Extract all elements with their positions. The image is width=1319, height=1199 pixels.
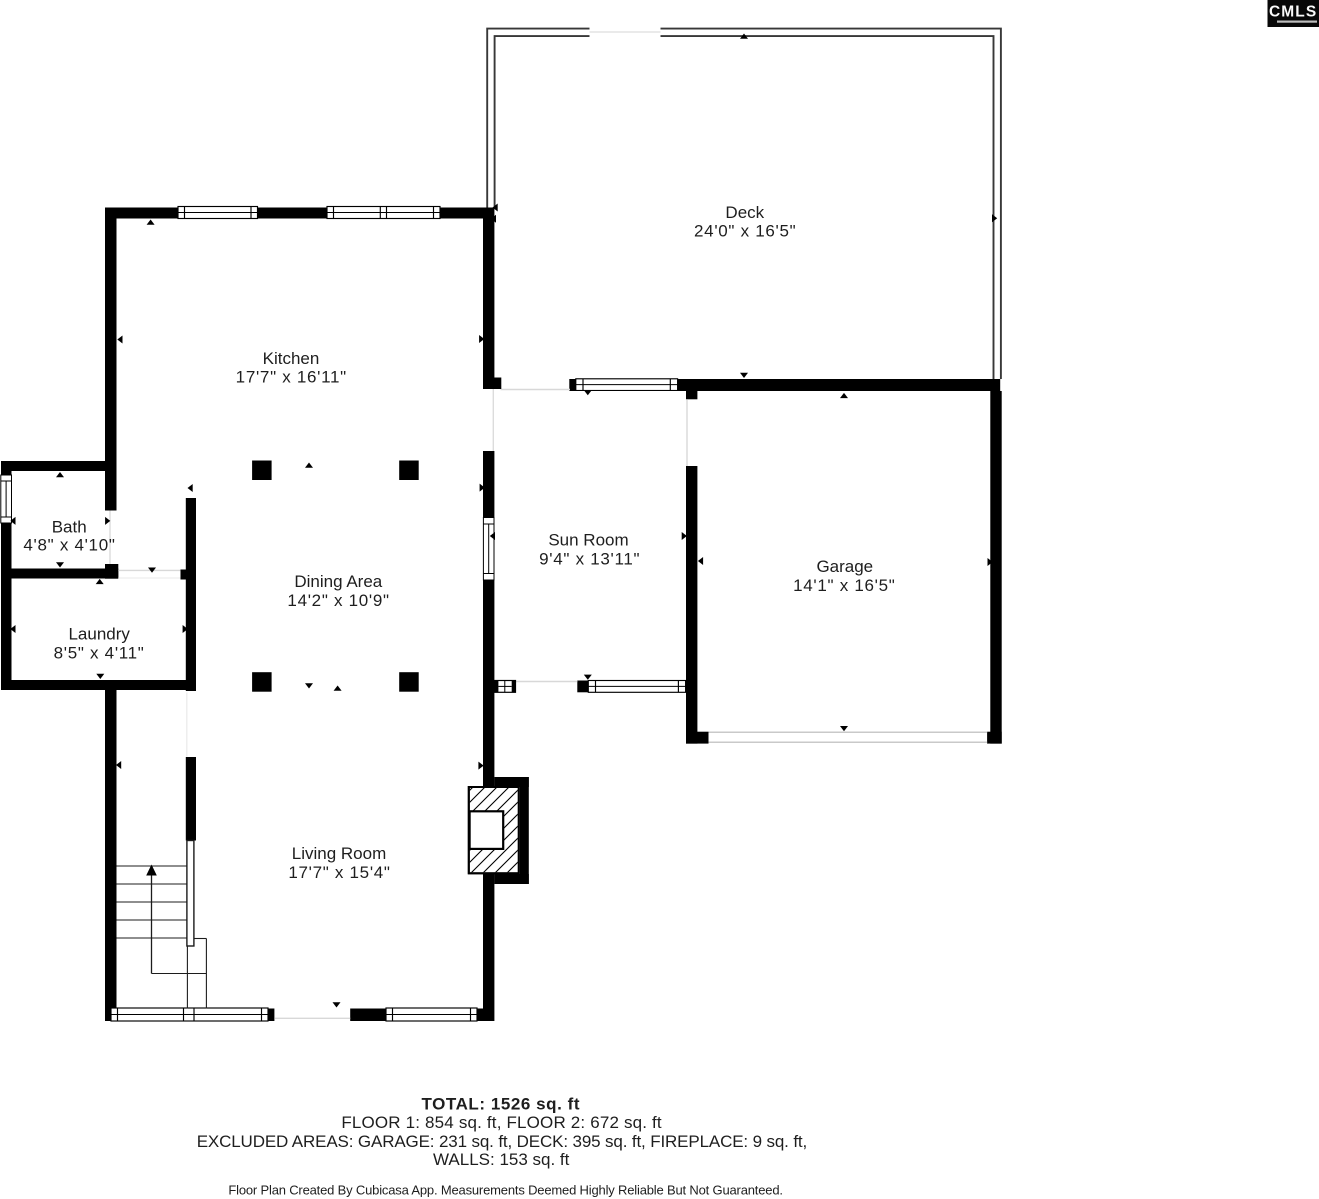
svg-text:9'4" x 13'11": 9'4" x 13'11" <box>539 550 640 569</box>
svg-text:EXCLUDED AREAS: GARAGE: 231 sq: EXCLUDED AREAS: GARAGE: 231 sq. ft, DECK… <box>197 1132 807 1151</box>
svg-text:17'7" x 15'4": 17'7" x 15'4" <box>288 863 390 882</box>
svg-text:24'0" x 16'5": 24'0" x 16'5" <box>694 221 796 240</box>
svg-text:14'2" x 10'9": 14'2" x 10'9" <box>287 591 389 610</box>
svg-text:Living Room: Living Room <box>292 844 387 863</box>
svg-text:Floor Plan Created By Cubicasa: Floor Plan Created By Cubicasa App. Meas… <box>228 1182 782 1197</box>
svg-text:Dining Area: Dining Area <box>294 572 382 591</box>
svg-text:4'8" x 4'10": 4'8" x 4'10" <box>23 536 115 555</box>
svg-text:14'1" x 16'5": 14'1" x 16'5" <box>793 576 895 595</box>
svg-text:TOTAL: 1526 sq. ft: TOTAL: 1526 sq. ft <box>422 1095 581 1114</box>
svg-text:Laundry: Laundry <box>68 625 130 644</box>
svg-text:Deck: Deck <box>725 203 764 222</box>
svg-text:CMLS: CMLS <box>1269 4 1317 21</box>
svg-text:17'7" x 16'11": 17'7" x 16'11" <box>236 367 347 386</box>
svg-text:Sun Room: Sun Room <box>548 531 628 550</box>
svg-text:WALLS: 153 sq. ft: WALLS: 153 sq. ft <box>433 1150 570 1169</box>
svg-text:8'5" x 4'11": 8'5" x 4'11" <box>54 644 145 663</box>
svg-text:Garage: Garage <box>816 557 873 576</box>
svg-text:Bath: Bath <box>52 517 87 536</box>
svg-text:Kitchen: Kitchen <box>263 349 320 368</box>
svg-text:FLOOR 1: 854 sq. ft, FLOOR 2:: FLOOR 1: 854 sq. ft, FLOOR 2: 672 sq. ft <box>341 1113 662 1132</box>
